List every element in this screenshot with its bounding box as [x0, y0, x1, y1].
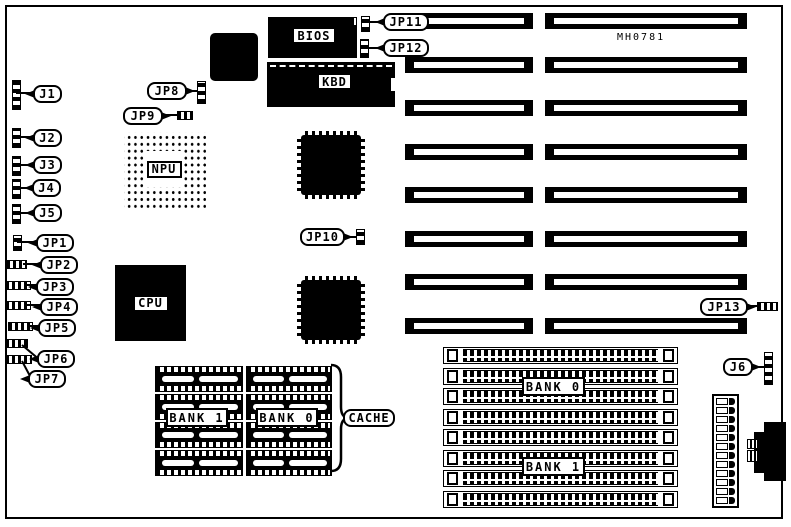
dip-pin-row	[246, 385, 332, 392]
power-pin	[716, 425, 728, 432]
jumper-label-jp12: JP12	[383, 39, 429, 57]
power-pin	[729, 452, 735, 459]
expansion-slot	[545, 100, 747, 116]
simm-bank0-label: BANK 0	[522, 377, 585, 396]
expansion-slot	[405, 274, 533, 290]
cache-bank0-label: BANK 0	[256, 408, 318, 427]
jumper-label-jp11: JP11	[383, 13, 429, 31]
cache-label: CACHE	[343, 409, 395, 427]
jumper-label-jp4: JP4	[40, 298, 78, 316]
j1-header	[12, 80, 21, 110]
dip-pin-row	[155, 385, 243, 392]
npu-label: NPU	[147, 161, 182, 178]
simm-pin-comb	[463, 431, 658, 444]
expansion-slot	[405, 187, 533, 203]
dip-pin-row	[155, 394, 243, 401]
power-pin-column	[729, 398, 735, 504]
bios-chip: BIOS	[268, 17, 357, 58]
power-pin	[729, 488, 735, 495]
motherboard-diagram: MH0781 BIOS KBD NPU CPU	[0, 0, 791, 527]
board-part-number: MH0781	[617, 32, 665, 43]
dip-body	[246, 429, 332, 441]
expansion-slot	[545, 57, 747, 73]
jumper-label-jp7: JP7	[28, 370, 66, 388]
jumper-label-jp13: JP13	[700, 298, 748, 316]
dip-pin-row	[246, 450, 332, 457]
j6-header	[764, 352, 773, 385]
jumper-label-jp2: JP2	[40, 256, 78, 274]
power-pin	[729, 461, 735, 468]
jumper-label-jp3: JP3	[36, 278, 74, 296]
power-pin	[729, 497, 735, 504]
jumper-label-jp5: JP5	[38, 319, 76, 337]
cpu-chip: CPU	[115, 265, 186, 341]
dip-socket	[155, 450, 243, 476]
connector-label-j5: J5	[33, 204, 62, 222]
dip-pin-row	[155, 469, 243, 476]
power-pin	[716, 443, 728, 450]
power-pin	[729, 470, 735, 477]
expansion-slot	[405, 57, 533, 73]
power-pin	[716, 470, 728, 477]
dip-socket	[155, 366, 243, 392]
simm-pin-comb	[463, 411, 658, 424]
j2-header	[12, 128, 21, 148]
simm-bank1-label: BANK 1	[522, 457, 585, 476]
power-pin	[729, 407, 735, 414]
power-connector	[712, 394, 739, 508]
j5-header	[12, 204, 21, 224]
dip-pin-row	[246, 469, 332, 476]
slot-column-right	[545, 13, 747, 334]
simm-pin-comb	[463, 349, 658, 362]
din-pin-block	[747, 450, 758, 462]
expansion-slot	[545, 187, 747, 203]
expansion-slot	[545, 231, 747, 247]
dip-socket	[246, 366, 332, 392]
kbd-chip-label: KBD	[317, 73, 352, 90]
power-pin	[729, 479, 735, 486]
bios-chip-notch	[354, 18, 356, 25]
expansion-slot	[545, 144, 747, 160]
simm-sockets	[443, 347, 678, 508]
connector-label-j4: J4	[32, 179, 61, 197]
power-pin	[716, 407, 728, 414]
slot-column-left	[405, 13, 533, 334]
qfp-chip-upper	[297, 131, 365, 199]
kbd-chip-dashed-line	[270, 65, 392, 67]
jp7-jumper	[5, 355, 32, 364]
connector-label-j3: J3	[33, 156, 62, 174]
expansion-slot	[545, 318, 747, 334]
jumper-label-jp1: JP1	[36, 234, 74, 252]
dip-pin-row	[155, 441, 243, 448]
connector-label-j1: J1	[33, 85, 62, 103]
npu-socket: NPU	[124, 132, 206, 208]
dip-body	[246, 373, 332, 385]
dip-pin-row	[246, 394, 332, 401]
din-pin-block	[747, 439, 758, 449]
power-pin	[716, 416, 728, 423]
qfp-body	[301, 280, 361, 340]
cache-bank1-label: BANK 1	[166, 408, 228, 427]
keyboard-din-connector	[754, 432, 786, 473]
power-pin	[729, 425, 735, 432]
dip-body	[246, 457, 332, 469]
keyboard-din-connector	[764, 472, 786, 481]
power-pin	[729, 416, 735, 423]
expansion-slot	[545, 274, 747, 290]
power-pin-column	[716, 398, 728, 504]
dip-body	[155, 373, 243, 385]
power-pin	[716, 479, 728, 486]
power-pin	[716, 497, 728, 504]
power-pin	[716, 461, 728, 468]
jumper-label-jp6: JP6	[37, 350, 75, 368]
expansion-slot	[405, 231, 533, 247]
simm-socket	[443, 409, 678, 426]
jumper-label-jp8: JP8	[147, 82, 187, 100]
j3-header	[12, 156, 21, 176]
connector-label-j6: J6	[723, 358, 753, 376]
power-pin	[716, 434, 728, 441]
npu-center: NPU	[144, 151, 184, 187]
jp9-jumper	[177, 111, 193, 120]
power-pin	[729, 398, 735, 405]
dip-socket	[246, 450, 332, 476]
jumper-label-jp9: JP9	[123, 107, 163, 125]
dip-pin-row	[246, 366, 332, 373]
power-pin	[716, 398, 728, 405]
expansion-slot	[405, 100, 533, 116]
jumper-label-jp10: JP10	[300, 228, 345, 246]
dip-pin-row	[246, 441, 332, 448]
unlabeled-chip	[210, 33, 258, 81]
power-pin	[729, 443, 735, 450]
dip-pin-row	[155, 450, 243, 457]
dip-pin-row	[155, 366, 243, 373]
kbd-chip-notch	[391, 78, 395, 91]
jp11-jumper	[361, 16, 370, 32]
simm-socket	[443, 491, 678, 508]
qfp-chip-lower	[297, 276, 365, 344]
jp1-jumper	[13, 235, 22, 251]
expansion-slot	[545, 13, 747, 29]
simm-socket	[443, 429, 678, 446]
expansion-slot	[405, 144, 533, 160]
power-pin	[729, 434, 735, 441]
cpu-label: CPU	[133, 295, 169, 312]
power-pin	[716, 452, 728, 459]
keyboard-controller-chip: KBD	[267, 62, 395, 107]
dip-body	[155, 457, 243, 469]
simm-pin-comb	[463, 493, 658, 506]
qfp-body	[301, 135, 361, 195]
jp10-jumper	[356, 229, 365, 245]
bios-chip-label: BIOS	[292, 27, 336, 44]
j4-header	[12, 179, 21, 199]
jp8-jumper	[197, 81, 206, 104]
expansion-slot	[405, 318, 533, 334]
jp13-jumper	[757, 302, 778, 311]
power-pin	[716, 488, 728, 495]
simm-socket	[443, 347, 678, 364]
dip-body	[155, 429, 243, 441]
connector-label-j2: J2	[33, 129, 62, 147]
